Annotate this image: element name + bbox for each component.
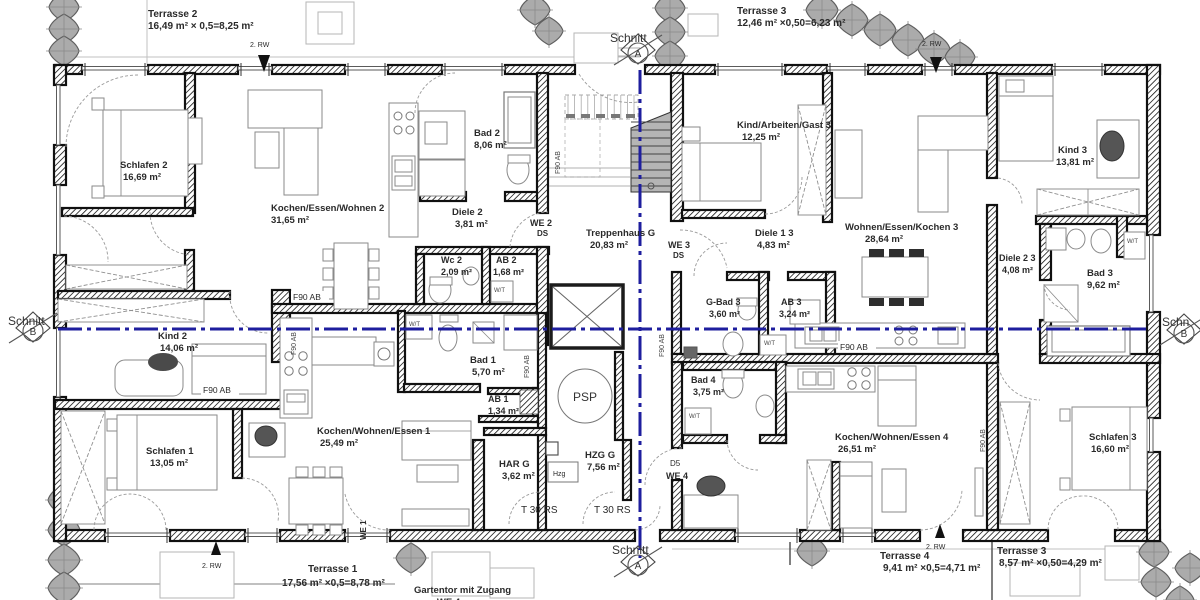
svg-text:Bad 3: Bad 3 (1087, 268, 1113, 279)
svg-text:F90 AB: F90 AB (203, 385, 231, 395)
svg-text:A: A (635, 561, 642, 572)
svg-text:8,06 m²: 8,06 m² (474, 140, 507, 151)
svg-text:Gartentor mit Zugang: Gartentor mit Zugang (414, 585, 511, 596)
svg-text:2. RW: 2. RW (926, 544, 946, 551)
svg-text:F90 AB: F90 AB (840, 342, 868, 352)
svg-text:1,68 m²: 1,68 m² (493, 267, 524, 277)
svg-text:AB 3: AB 3 (781, 297, 802, 307)
svg-text:HAR G: HAR G (499, 459, 530, 470)
svg-text:F90 AB: F90 AB (524, 355, 531, 378)
svg-text:3,60 m²: 3,60 m² (709, 309, 740, 319)
svg-text:3,62 m²: 3,62 m² (502, 471, 535, 482)
svg-text:5,70 m²: 5,70 m² (472, 367, 505, 378)
svg-text:13,81 m²: 13,81 m² (1056, 157, 1094, 168)
svg-text:DS: DS (673, 251, 685, 260)
svg-text:2. RW: 2. RW (202, 563, 222, 570)
svg-text:31,65 m²: 31,65 m² (271, 215, 309, 226)
svg-text:9,62 m²: 9,62 m² (1087, 280, 1120, 291)
svg-text:Diele 2: Diele 2 (452, 207, 483, 218)
svg-text:D5: D5 (670, 459, 681, 468)
svg-text:T 30 RS: T 30 RS (521, 505, 558, 516)
svg-text:2. RW: 2. RW (922, 41, 942, 48)
svg-text:F90 AB: F90 AB (555, 151, 562, 174)
svg-text:16,60 m²: 16,60 m² (1091, 444, 1129, 455)
svg-text:1,34 m²: 1,34 m² (488, 406, 519, 416)
svg-text:B: B (30, 327, 37, 338)
svg-text:Kochen/Wohnen/Essen 4: Kochen/Wohnen/Essen 4 (835, 432, 949, 443)
svg-text:WE 2: WE 2 (530, 218, 552, 228)
svg-text:3,81 m²: 3,81 m² (455, 219, 488, 230)
svg-text:12,25 m²: 12,25 m² (742, 132, 780, 143)
svg-text:25,49 m²: 25,49 m² (320, 438, 358, 449)
svg-text:W/T: W/T (689, 414, 700, 420)
svg-text:Terrasse 4: Terrasse 4 (880, 551, 930, 562)
svg-text:Kind 2: Kind 2 (158, 331, 187, 342)
svg-text:W/T: W/T (764, 341, 775, 347)
svg-text:9,41 m² ×0,5=4,71 m²: 9,41 m² ×0,5=4,71 m² (883, 563, 981, 574)
svg-text:Wohnen/Essen/Kochen 3: Wohnen/Essen/Kochen 3 (845, 222, 958, 233)
svg-text:W/T: W/T (1127, 239, 1138, 245)
svg-text:Schlafen 1: Schlafen 1 (146, 446, 194, 457)
svg-text:4,83 m²: 4,83 m² (757, 240, 790, 251)
svg-text:A: A (635, 49, 642, 60)
svg-text:Treppenhaus G: Treppenhaus G (586, 228, 655, 239)
svg-text:Kochen/Essen/Wohnen 2: Kochen/Essen/Wohnen 2 (271, 203, 384, 214)
svg-text:AB 1: AB 1 (488, 394, 509, 404)
svg-text:16,69 m²: 16,69 m² (123, 172, 161, 183)
svg-text:B: B (1181, 329, 1188, 340)
svg-text:W/T: W/T (494, 288, 505, 294)
svg-text:8,57 m² ×0,50=4,29 m²: 8,57 m² ×0,50=4,29 m² (999, 558, 1103, 569)
svg-text:14,06 m²: 14,06 m² (160, 343, 198, 354)
svg-text:4,08 m²: 4,08 m² (1002, 265, 1033, 275)
svg-text:W/T: W/T (409, 322, 420, 328)
svg-text:2. RW: 2. RW (250, 42, 270, 49)
svg-text:F90 AB: F90 AB (980, 429, 987, 452)
svg-text:F90 AB: F90 AB (293, 292, 321, 302)
svg-text:Kind 3: Kind 3 (1058, 145, 1087, 156)
svg-text:Hzg: Hzg (553, 471, 566, 478)
svg-text:Schnitt: Schnitt (8, 314, 45, 328)
svg-text:T 30 RS: T 30 RS (594, 505, 631, 516)
svg-text:Kochen/Wohnen/Essen 1: Kochen/Wohnen/Essen 1 (317, 426, 431, 437)
svg-text:F90 AB: F90 AB (659, 334, 666, 357)
svg-text:Diele 2 3: Diele 2 3 (999, 253, 1036, 263)
svg-text:Wc 2: Wc 2 (441, 255, 462, 265)
svg-text:7,56 m²: 7,56 m² (587, 462, 620, 473)
svg-text:Diele 1 3: Diele 1 3 (755, 228, 794, 239)
svg-text:26,51 m²: 26,51 m² (838, 444, 876, 455)
svg-text:Schn: Schn (1162, 315, 1189, 329)
svg-text:HZG G: HZG G (585, 450, 615, 461)
svg-text:Schnitt: Schnitt (612, 543, 649, 557)
svg-text:Bad 2: Bad 2 (474, 128, 500, 139)
svg-text:WE 1: WE 1 (359, 520, 368, 540)
svg-text:Terrasse 3: Terrasse 3 (997, 546, 1047, 557)
svg-text:Kind/Arbeiten/Gast 3: Kind/Arbeiten/Gast 3 (737, 120, 831, 131)
svg-text:PSP: PSP (573, 390, 597, 404)
svg-text:G-Bad 3: G-Bad 3 (706, 297, 741, 307)
svg-text:Schlafen 2: Schlafen 2 (120, 160, 168, 171)
svg-text:Terrasse 1: Terrasse 1 (308, 564, 358, 575)
svg-text:F90 AB: F90 AB (291, 332, 298, 355)
svg-text:Terrasse 3: Terrasse 3 (737, 6, 787, 17)
svg-text:WE 3: WE 3 (668, 240, 690, 250)
svg-text:12,46 m² ×0,50=6,23 m²: 12,46 m² ×0,50=6,23 m² (737, 18, 846, 29)
svg-text:WE 4: WE 4 (666, 471, 688, 481)
svg-text:20,83 m²: 20,83 m² (590, 240, 628, 251)
svg-text:16,49 m² × 0,5=8,25 m²: 16,49 m² × 0,5=8,25 m² (148, 21, 254, 32)
svg-text:Schlafen 3: Schlafen 3 (1089, 432, 1137, 443)
svg-text:13,05 m²: 13,05 m² (150, 458, 188, 469)
svg-text:2,09 m²: 2,09 m² (441, 267, 472, 277)
svg-text:3,24 m²: 3,24 m² (779, 309, 810, 319)
svg-text:28,64 m²: 28,64 m² (865, 234, 903, 245)
svg-text:Schnitt: Schnitt (610, 31, 647, 45)
svg-text:AB 2: AB 2 (496, 255, 517, 265)
svg-text:Terrasse 2: Terrasse 2 (148, 9, 198, 20)
svg-text:17,56 m² ×0,5=8,78 m²: 17,56 m² ×0,5=8,78 m² (282, 578, 386, 589)
svg-text:Bad 4: Bad 4 (691, 375, 716, 385)
svg-text:3,75 m²: 3,75 m² (693, 387, 724, 397)
svg-text:Bad 1: Bad 1 (470, 355, 497, 366)
svg-text:DS: DS (537, 229, 549, 238)
